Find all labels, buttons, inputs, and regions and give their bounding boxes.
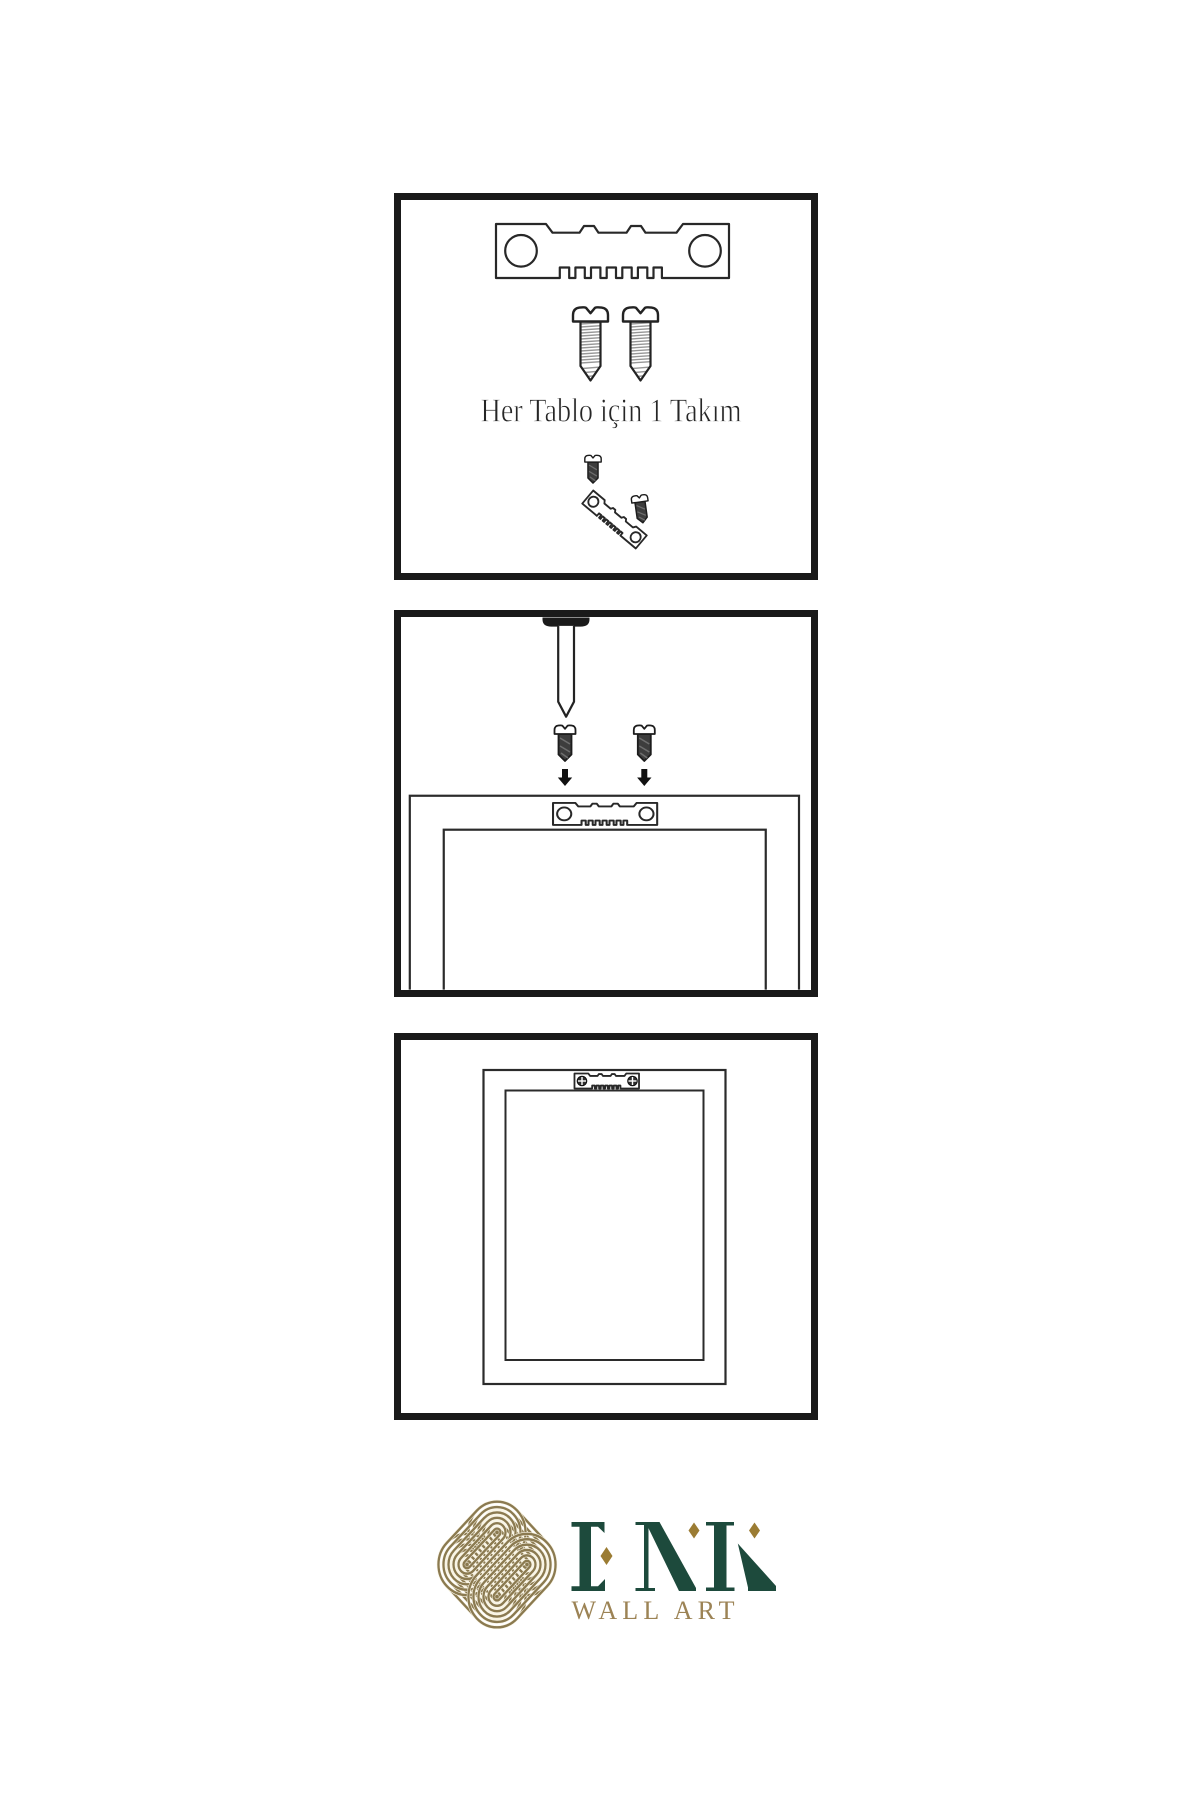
svg-text:Her Tablo için 1 Takım: Her Tablo için 1 Takım (481, 393, 742, 430)
